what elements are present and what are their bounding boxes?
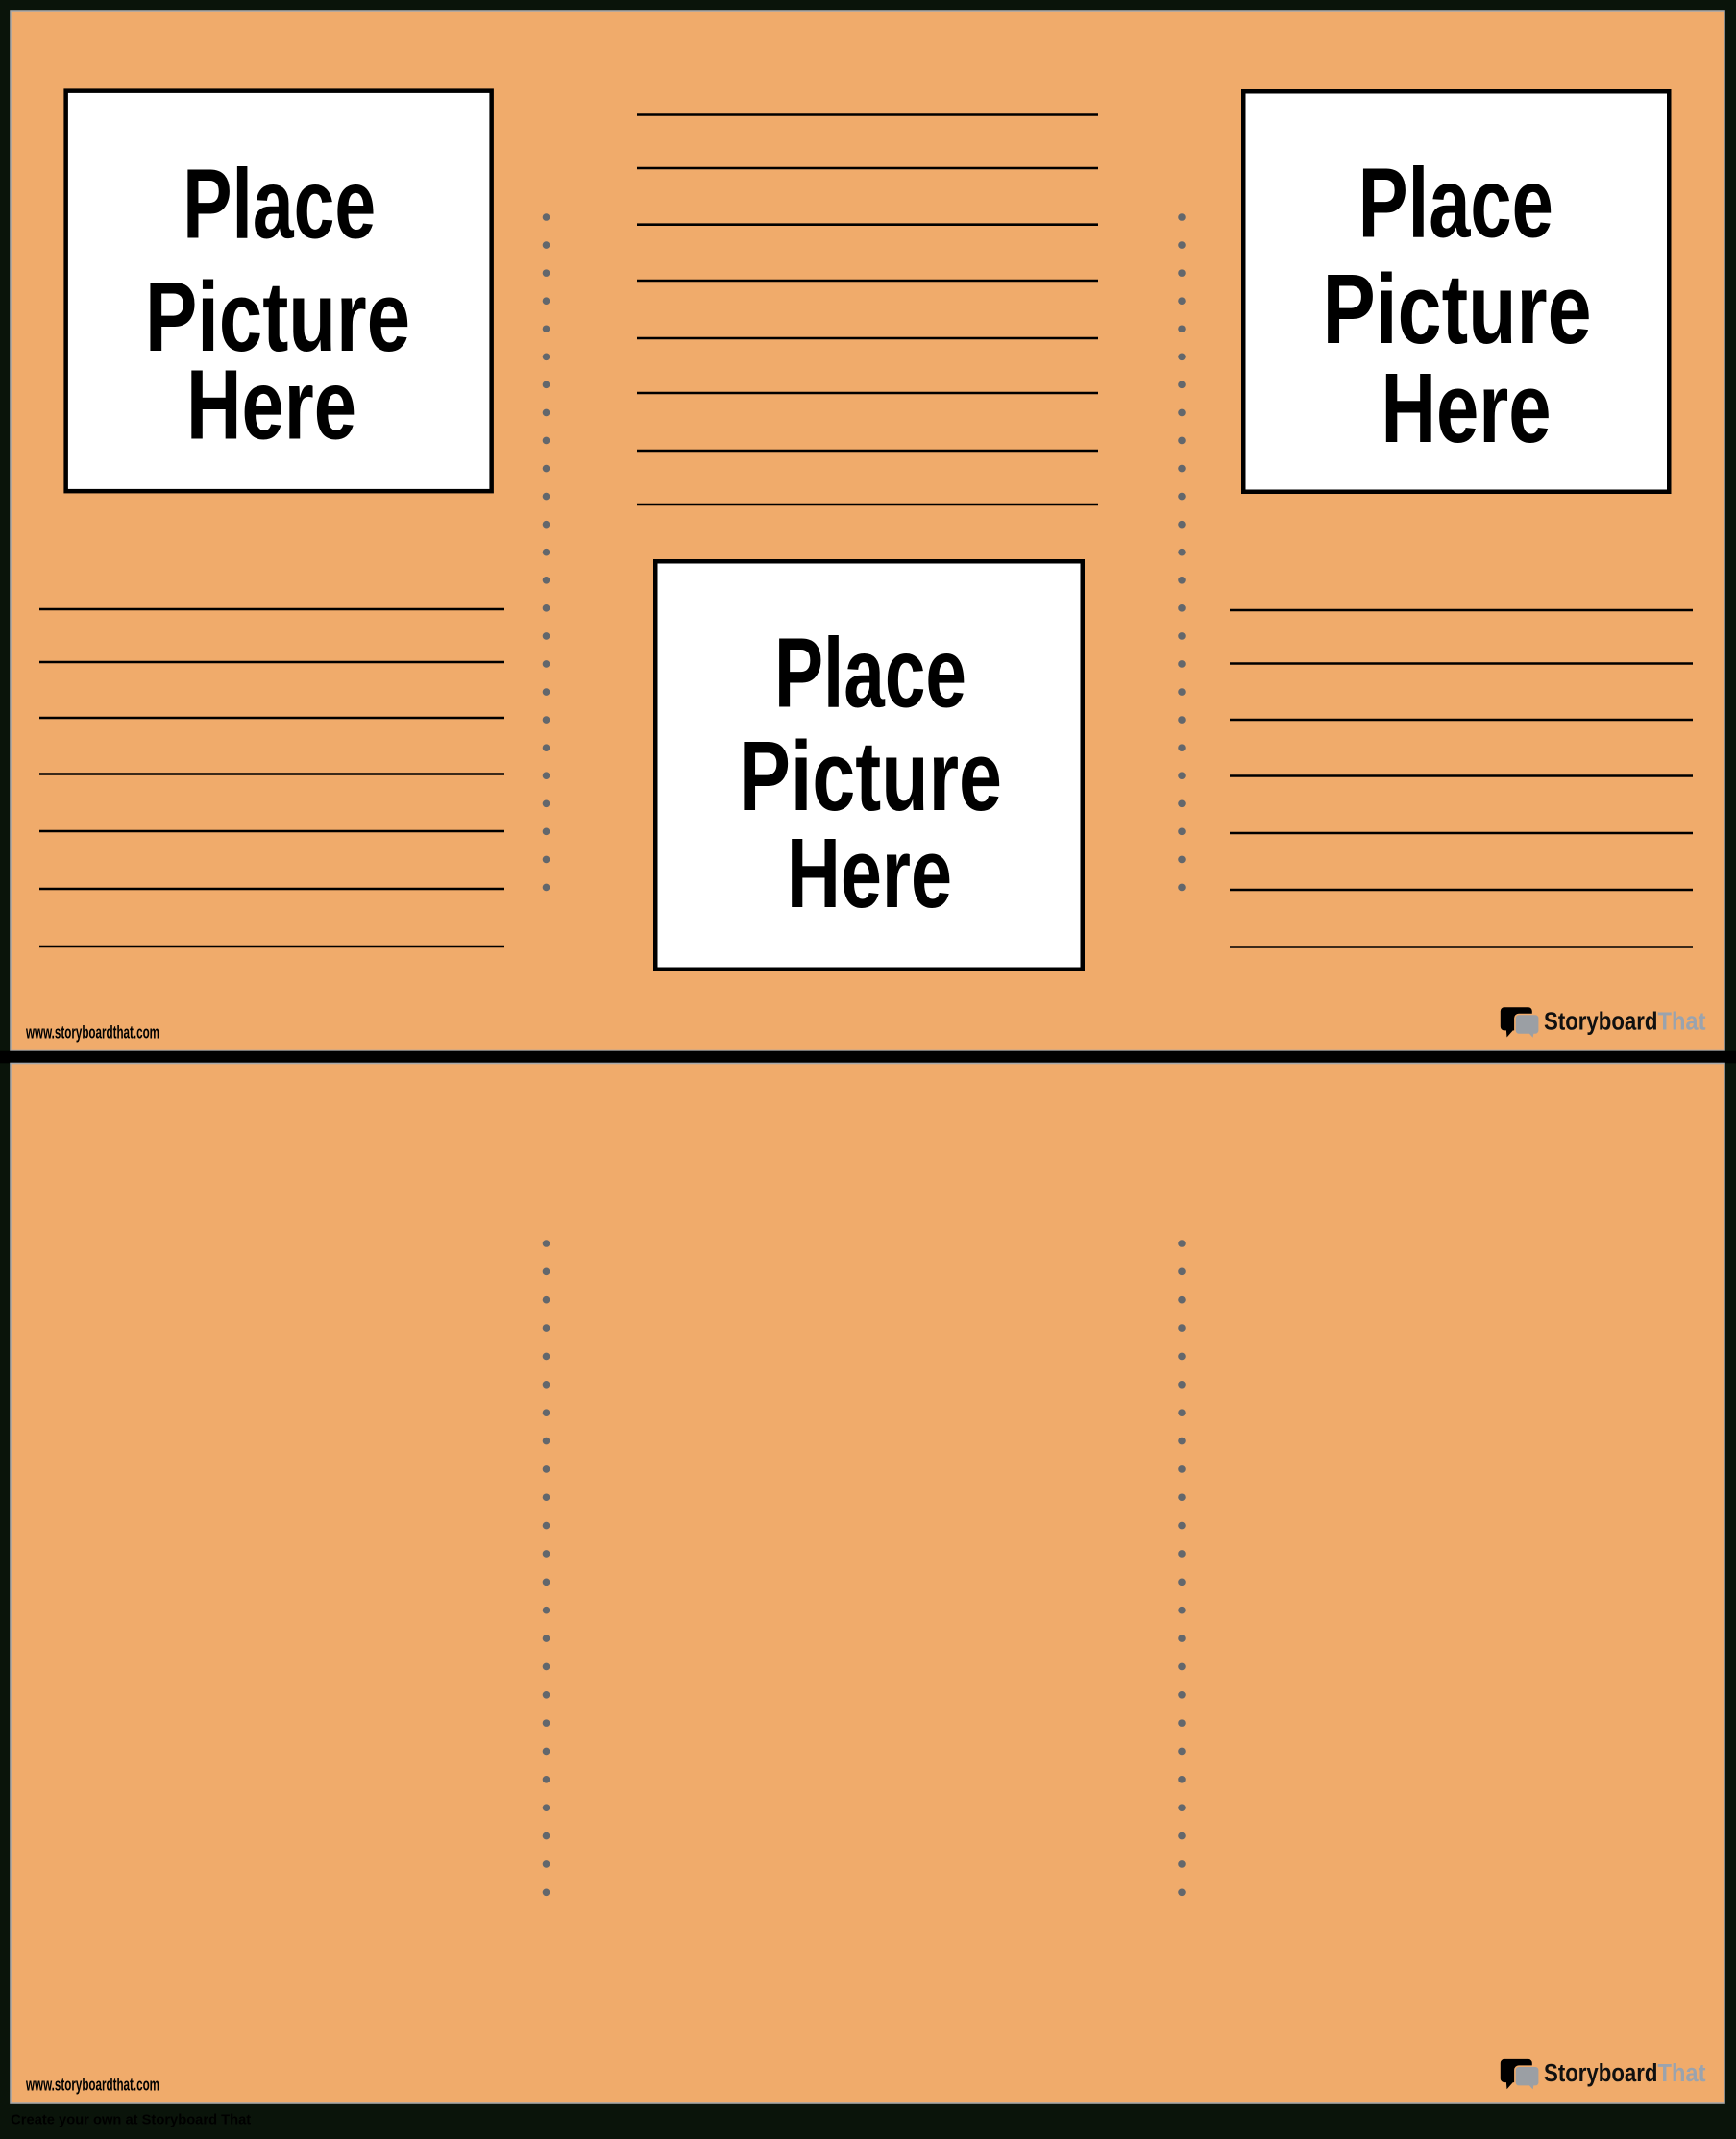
svg-text:Picture: Picture xyxy=(739,721,1002,831)
svg-text:Here: Here xyxy=(186,349,356,459)
svg-text:Picture: Picture xyxy=(1323,254,1592,364)
svg-text:Here: Here xyxy=(787,818,952,928)
svg-text:Place: Place xyxy=(1358,148,1553,258)
svg-text:Storyboard: Storyboard xyxy=(1544,2060,1658,2087)
svg-text:Place: Place xyxy=(183,148,376,258)
svg-text:Create your own at Storyboard: Create your own at Storyboard That xyxy=(11,2113,251,2128)
svg-text:That: That xyxy=(1658,1009,1706,1036)
svg-text:Place: Place xyxy=(774,618,966,728)
svg-text:Storyboard: Storyboard xyxy=(1544,1009,1658,1036)
svg-text:www.storyboardthat.com: www.storyboardthat.com xyxy=(25,1023,159,1043)
svg-text:www.storyboardthat.com: www.storyboardthat.com xyxy=(25,2076,159,2095)
svg-text:Here: Here xyxy=(1381,353,1552,463)
svg-text:That: That xyxy=(1658,2060,1706,2087)
